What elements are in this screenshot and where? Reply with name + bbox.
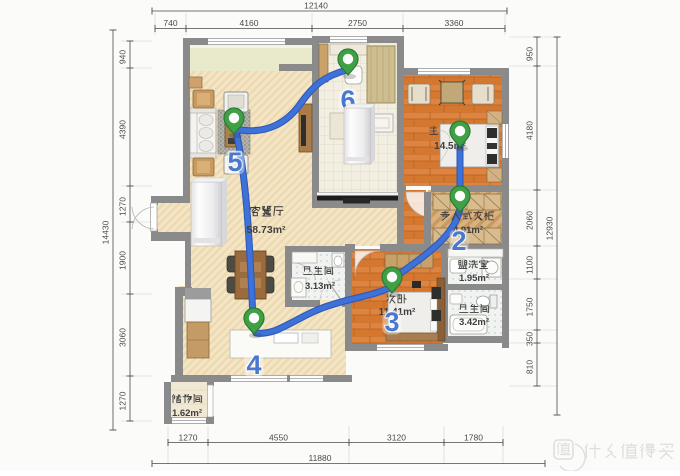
- svg-text:940: 940: [118, 50, 128, 64]
- svg-text:58.73m²: 58.73m²: [246, 224, 286, 236]
- svg-text:4390: 4390: [118, 120, 128, 139]
- svg-text:350: 350: [525, 332, 535, 346]
- svg-text:1270: 1270: [179, 433, 198, 443]
- svg-text:3.13m²: 3.13m²: [305, 281, 335, 292]
- svg-text:3060: 3060: [118, 328, 128, 347]
- svg-text:3.42m²: 3.42m²: [459, 317, 489, 328]
- svg-text:14430: 14430: [101, 220, 111, 244]
- svg-text:950: 950: [525, 47, 535, 61]
- svg-text:4550: 4550: [269, 433, 288, 443]
- svg-text:1100: 1100: [525, 256, 535, 275]
- svg-text:1780: 1780: [464, 433, 483, 443]
- svg-text:3360: 3360: [445, 18, 464, 28]
- svg-text:4180: 4180: [525, 121, 535, 140]
- svg-text:810: 810: [525, 360, 535, 374]
- svg-text:2060: 2060: [525, 211, 535, 230]
- svg-text:1.95m²: 1.95m²: [459, 273, 489, 284]
- svg-text:11880: 11880: [308, 453, 331, 463]
- svg-text:1270: 1270: [118, 197, 128, 216]
- svg-text:2750: 2750: [348, 18, 367, 28]
- svg-text:4160: 4160: [240, 18, 259, 28]
- svg-text:4: 4: [246, 350, 261, 380]
- svg-text:1750: 1750: [525, 297, 535, 316]
- svg-text:740: 740: [163, 18, 177, 28]
- svg-text:3120: 3120: [387, 433, 406, 443]
- svg-text:2: 2: [451, 226, 466, 256]
- svg-text:1900: 1900: [118, 251, 128, 270]
- svg-text:3: 3: [384, 307, 399, 337]
- svg-text:1.62m²: 1.62m²: [172, 408, 202, 419]
- svg-text:12140: 12140: [304, 1, 328, 11]
- svg-text:1270: 1270: [118, 391, 128, 410]
- svg-text:5: 5: [227, 147, 242, 177]
- svg-text:12930: 12930: [545, 216, 555, 240]
